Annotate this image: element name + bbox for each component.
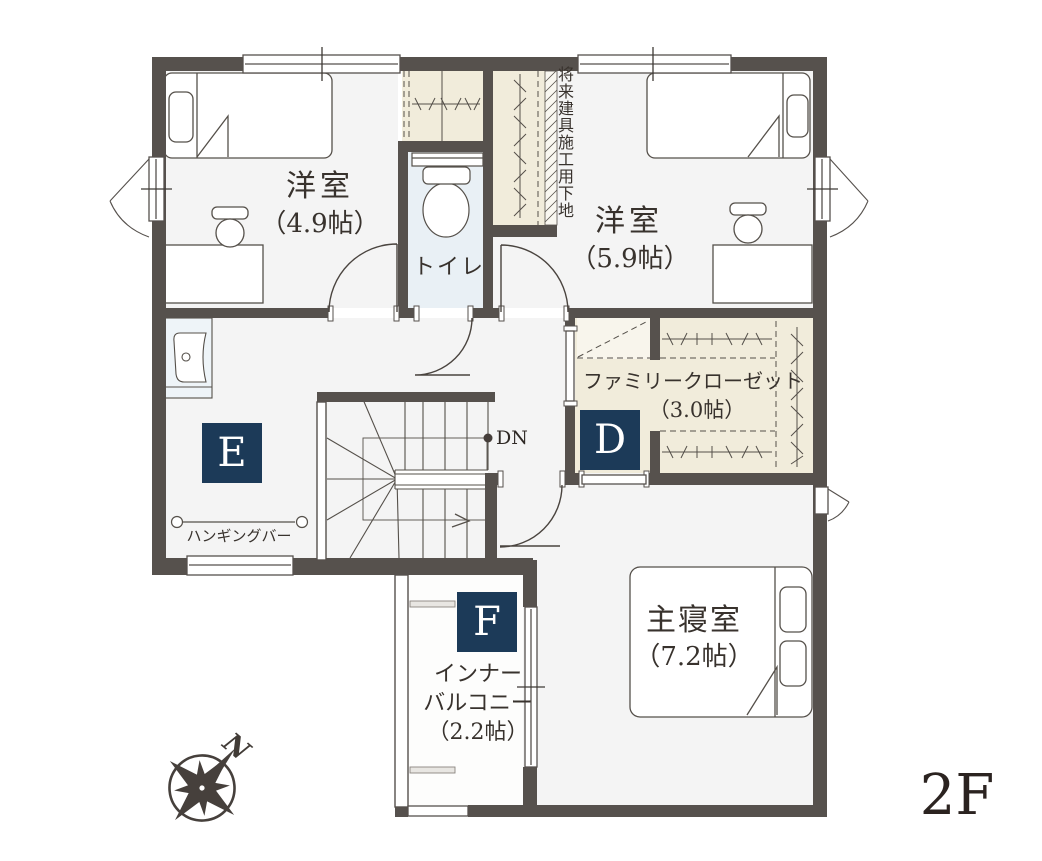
zone-badge-d: D — [580, 410, 640, 470]
stairs-down-marker — [484, 434, 493, 443]
floor-label: 2F — [920, 763, 994, 828]
window-hall-bottom — [187, 556, 293, 575]
hanging-bar-label: ハンギングバー — [186, 528, 291, 545]
room-label-balcony-size: （2.2帖） — [428, 720, 529, 745]
room-label-master-bedroom-size: （7.2帖） — [634, 643, 753, 673]
room-label-family-closet-name: ファミリークローゼット — [583, 370, 803, 393]
room-label-western-2-size: （5.9帖） — [570, 245, 689, 275]
room-label-toilet: トイレ — [413, 255, 485, 280]
balcony-parapet — [395, 575, 408, 807]
balcony-bottom-window — [408, 806, 468, 816]
stairs-down-label: DN — [496, 427, 528, 449]
room-label-western-1-size: （4.9帖） — [260, 210, 379, 240]
room-label-family-closet-size: （3.0帖） — [649, 398, 745, 422]
closet-sliding-door-bottom — [582, 475, 646, 484]
stair-rail — [317, 402, 326, 560]
desk-2 — [713, 245, 812, 303]
washbasin — [162, 318, 212, 398]
single-bed-1 — [164, 73, 332, 158]
room-label-western-2-name: 洋室 — [595, 205, 663, 240]
floor-plan-page: 洋室 （4.9帖） 洋室 （5.9帖） トイレ ファミリークローゼット （3.0… — [0, 0, 1042, 861]
future-fitting-note: 将来建具施工用下地 — [556, 66, 572, 219]
room-label-balcony-line2: バルコニー — [423, 691, 533, 716]
room-label-master-bedroom-name: 主寝室 — [646, 604, 742, 639]
closet-sliding-door-side — [566, 331, 574, 401]
room-label-balcony-line1: インナー — [434, 662, 522, 687]
zone-badge-e: E — [202, 423, 262, 483]
single-bed-2 — [647, 73, 810, 158]
zone-badge-f: F — [457, 592, 517, 652]
room-label-western-1-name: 洋室 — [286, 170, 354, 205]
desk-1 — [163, 245, 263, 303]
